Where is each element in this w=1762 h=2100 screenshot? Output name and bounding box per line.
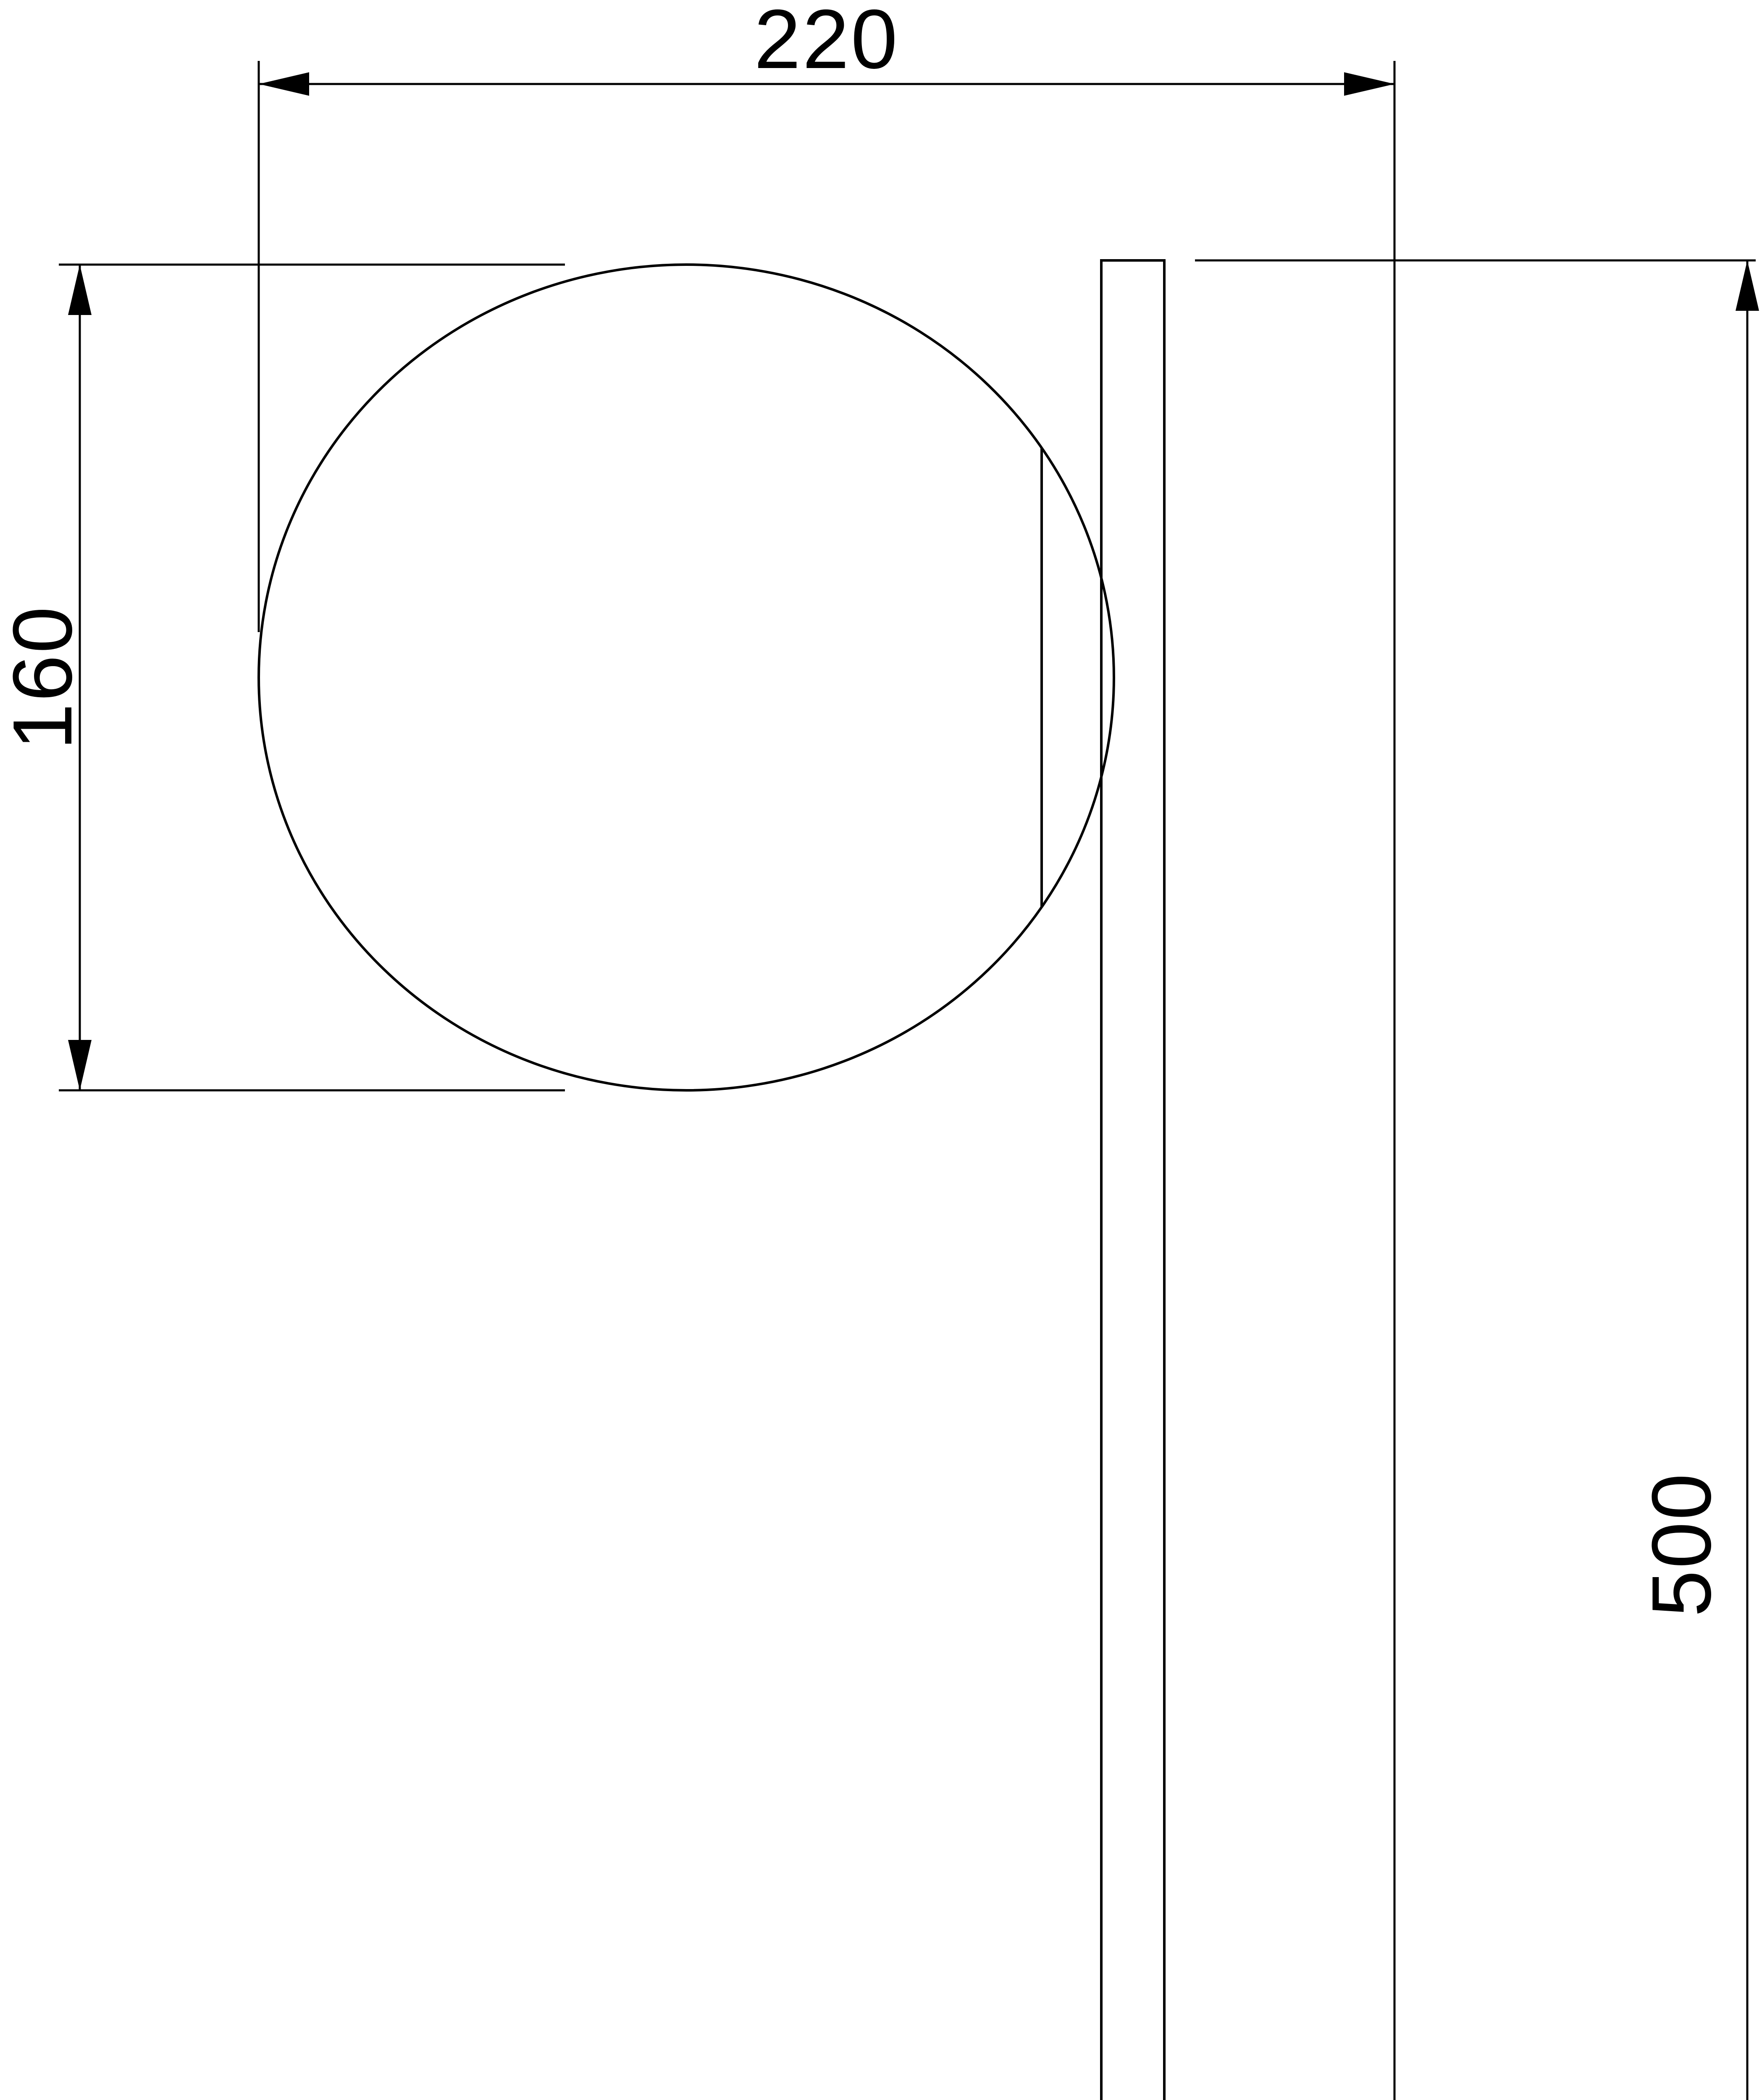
drawing-canvas: 220 160 500 120 xyxy=(0,0,1762,2100)
lamp-outline xyxy=(259,260,1394,2100)
lamp-technical-drawing: 220 160 500 120 xyxy=(0,0,1762,2100)
arrowhead-right-icon xyxy=(1344,72,1394,96)
lamp-shade-globe xyxy=(259,265,1114,1090)
lamp-stem xyxy=(1101,260,1164,2100)
arrowhead-up-icon xyxy=(1736,260,1759,311)
arrowhead-left-icon xyxy=(259,72,309,96)
dim-overall-width-label: 220 xyxy=(754,0,899,86)
dim-shade-diameter: 160 xyxy=(0,265,565,1090)
arrowhead-up-icon xyxy=(68,265,92,315)
dim-overall-height: 500 xyxy=(1195,260,1759,2100)
dim-shade-diameter-label: 160 xyxy=(0,605,89,750)
dim-overall-width: 220 xyxy=(259,0,1394,2100)
arrowhead-down-icon xyxy=(68,1040,92,1090)
dim-overall-height-label: 500 xyxy=(1635,1472,1728,1617)
